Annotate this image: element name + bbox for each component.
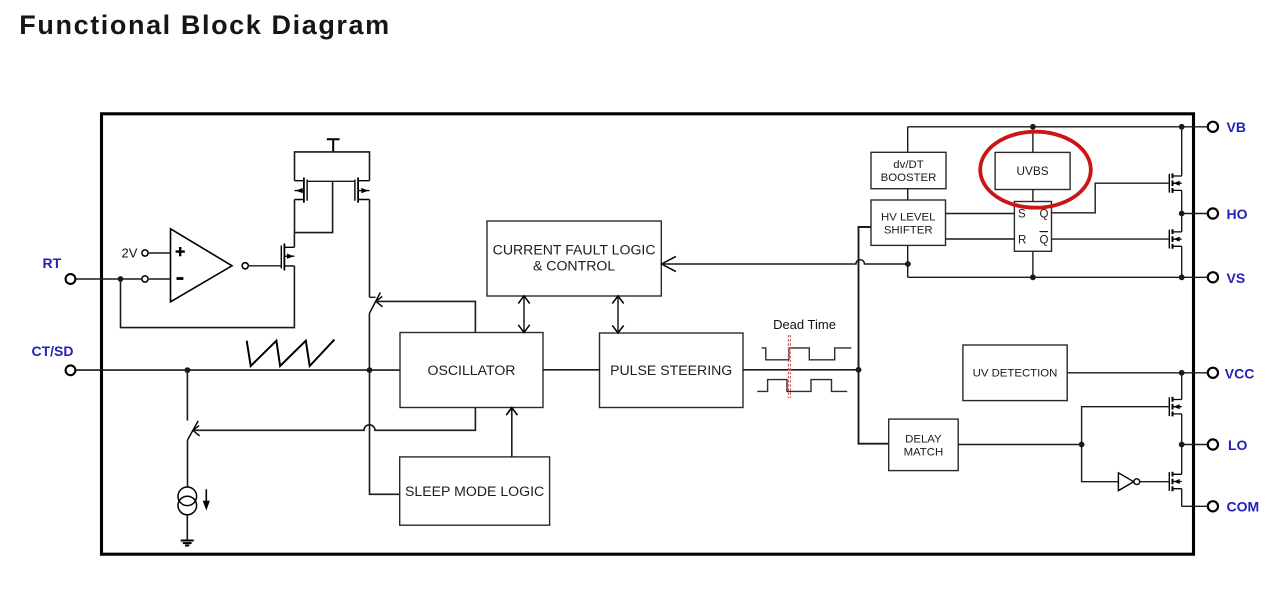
svg-text:dv/DT: dv/DT bbox=[893, 159, 923, 171]
svg-text:LO: LO bbox=[1228, 437, 1248, 453]
svg-text:UVBS: UVBS bbox=[1017, 164, 1049, 178]
svg-text:VB: VB bbox=[1227, 119, 1246, 135]
svg-text:Functional Block Diagram: Functional Block Diagram bbox=[19, 10, 390, 40]
svg-text:Dead Time: Dead Time bbox=[773, 317, 836, 332]
svg-text:OSCILLATOR: OSCILLATOR bbox=[428, 362, 516, 378]
svg-text:Q: Q bbox=[1040, 235, 1049, 247]
svg-text:CURRENT FAULT LOGIC: CURRENT FAULT LOGIC bbox=[493, 242, 656, 258]
svg-text:SLEEP MODE LOGIC: SLEEP MODE LOGIC bbox=[405, 483, 544, 499]
svg-text:UV DETECTION: UV DETECTION bbox=[973, 368, 1058, 380]
svg-text:BOOSTER: BOOSTER bbox=[881, 172, 937, 184]
svg-text:VCC: VCC bbox=[1225, 365, 1255, 381]
svg-text:HV LEVEL: HV LEVEL bbox=[881, 212, 935, 224]
svg-text:2V: 2V bbox=[122, 246, 138, 261]
svg-text:Q: Q bbox=[1040, 208, 1049, 220]
svg-text:VS: VS bbox=[1227, 270, 1246, 286]
svg-text:R: R bbox=[1018, 235, 1026, 247]
svg-text:COM: COM bbox=[1227, 499, 1260, 515]
svg-text:PULSE STEERING: PULSE STEERING bbox=[610, 362, 732, 378]
svg-text:S: S bbox=[1018, 208, 1026, 220]
svg-text:SHIFTER: SHIFTER bbox=[884, 225, 933, 237]
svg-text:& CONTROL: & CONTROL bbox=[533, 258, 615, 274]
svg-text:CT/SD: CT/SD bbox=[32, 343, 74, 359]
svg-text:RT: RT bbox=[43, 255, 62, 271]
svg-text:DELAY: DELAY bbox=[905, 433, 942, 445]
svg-text:HO: HO bbox=[1227, 206, 1248, 222]
svg-text:MATCH: MATCH bbox=[904, 446, 944, 458]
